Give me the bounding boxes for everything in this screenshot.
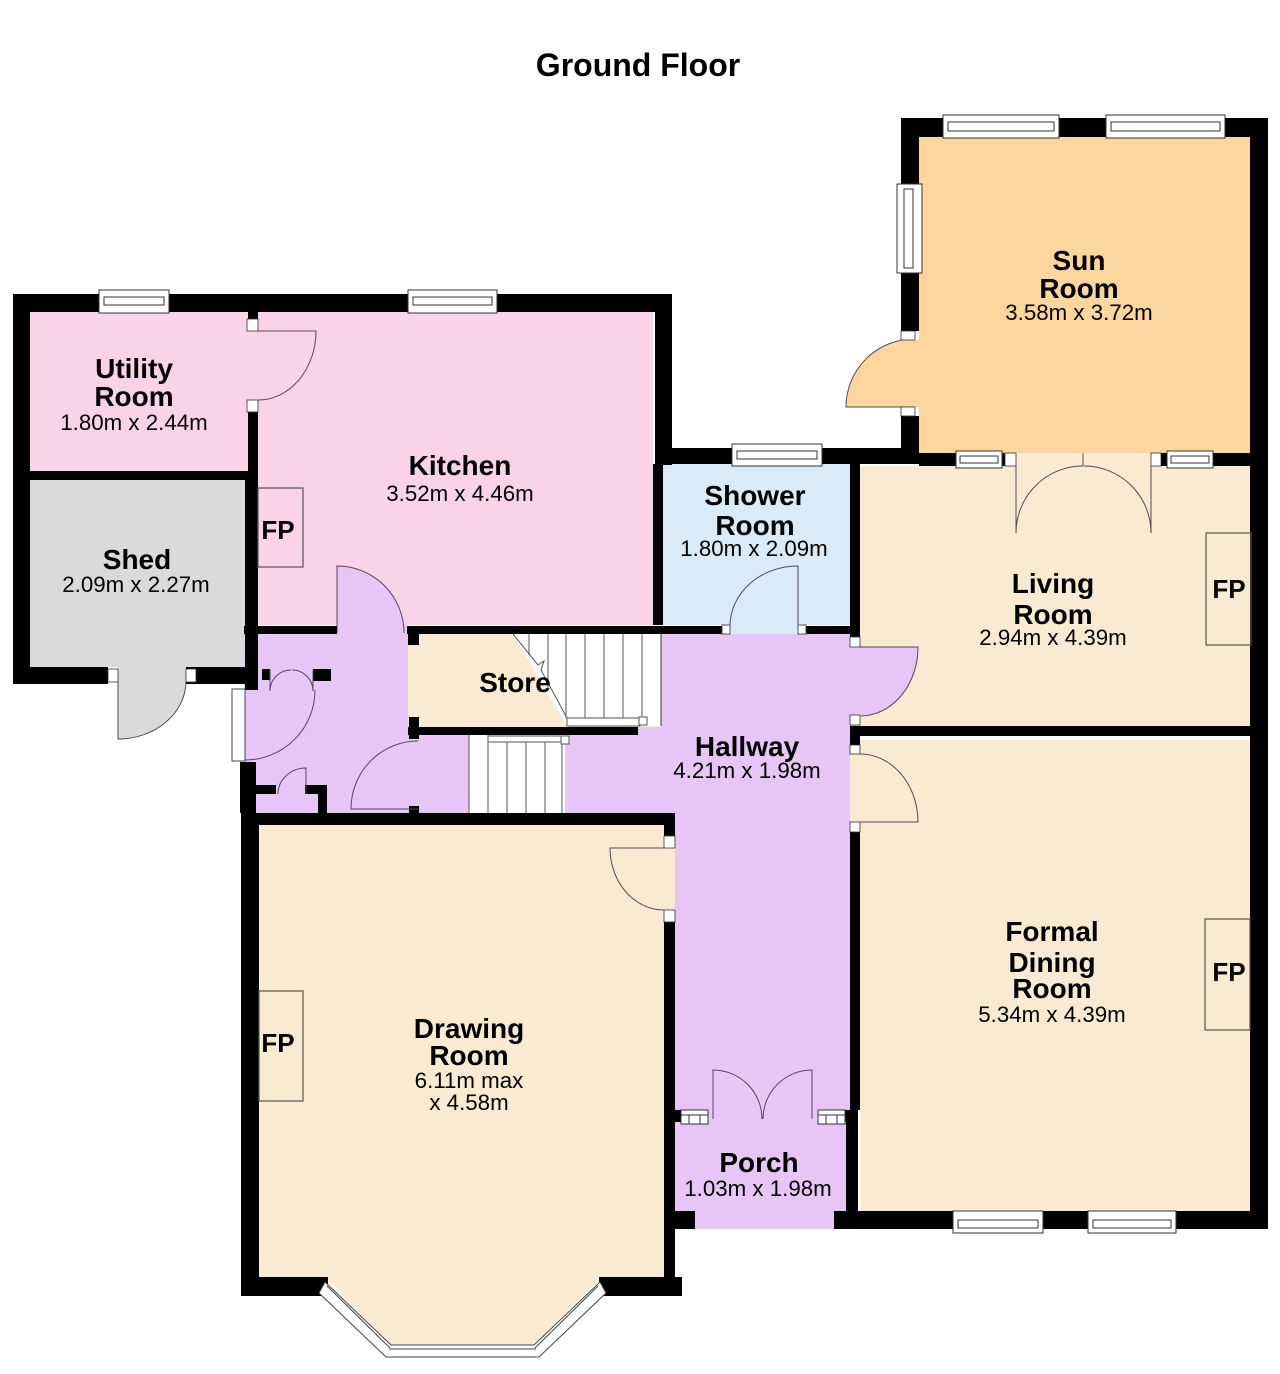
svg-text:Porch: Porch [719,1147,798,1178]
svg-text:2.94m x 4.39m: 2.94m x 4.39m [979,625,1126,650]
svg-text:1.80m x 2.44m: 1.80m x 2.44m [60,410,207,435]
svg-text:Shower: Shower [704,480,805,511]
svg-text:2.09m x 2.27m: 2.09m x 2.27m [62,572,209,597]
svg-text:Store: Store [479,667,551,698]
svg-text:Room: Room [429,1040,508,1071]
svg-text:FP: FP [261,515,294,545]
svg-text:Living: Living [1012,568,1094,599]
svg-text:1.80m x 2.09m: 1.80m x 2.09m [680,536,827,561]
svg-text:4.21m x 1.98m: 4.21m x 1.98m [673,758,820,783]
svg-text:3.58m x 3.72m: 3.58m x 3.72m [1005,300,1152,325]
svg-text:Shed: Shed [103,544,171,575]
svg-text:1.03m x 1.98m: 1.03m x 1.98m [684,1176,831,1201]
svg-text:Room: Room [1012,973,1091,1004]
svg-text:5.34m x 4.39m: 5.34m x 4.39m [978,1002,1125,1027]
svg-text:Utility: Utility [95,353,173,384]
svg-text:Ground Floor: Ground Floor [536,47,740,83]
svg-text:FP: FP [1212,574,1245,604]
svg-text:FP: FP [1212,957,1245,987]
svg-text:3.52m x 4.46m: 3.52m x 4.46m [386,481,533,506]
svg-text:Sun: Sun [1053,245,1106,276]
svg-text:Room: Room [94,381,173,412]
svg-text:Formal: Formal [1005,916,1098,947]
svg-text:FP: FP [261,1028,294,1058]
svg-text:x 4.58m: x 4.58m [429,1090,508,1115]
svg-text:Kitchen: Kitchen [409,450,512,481]
